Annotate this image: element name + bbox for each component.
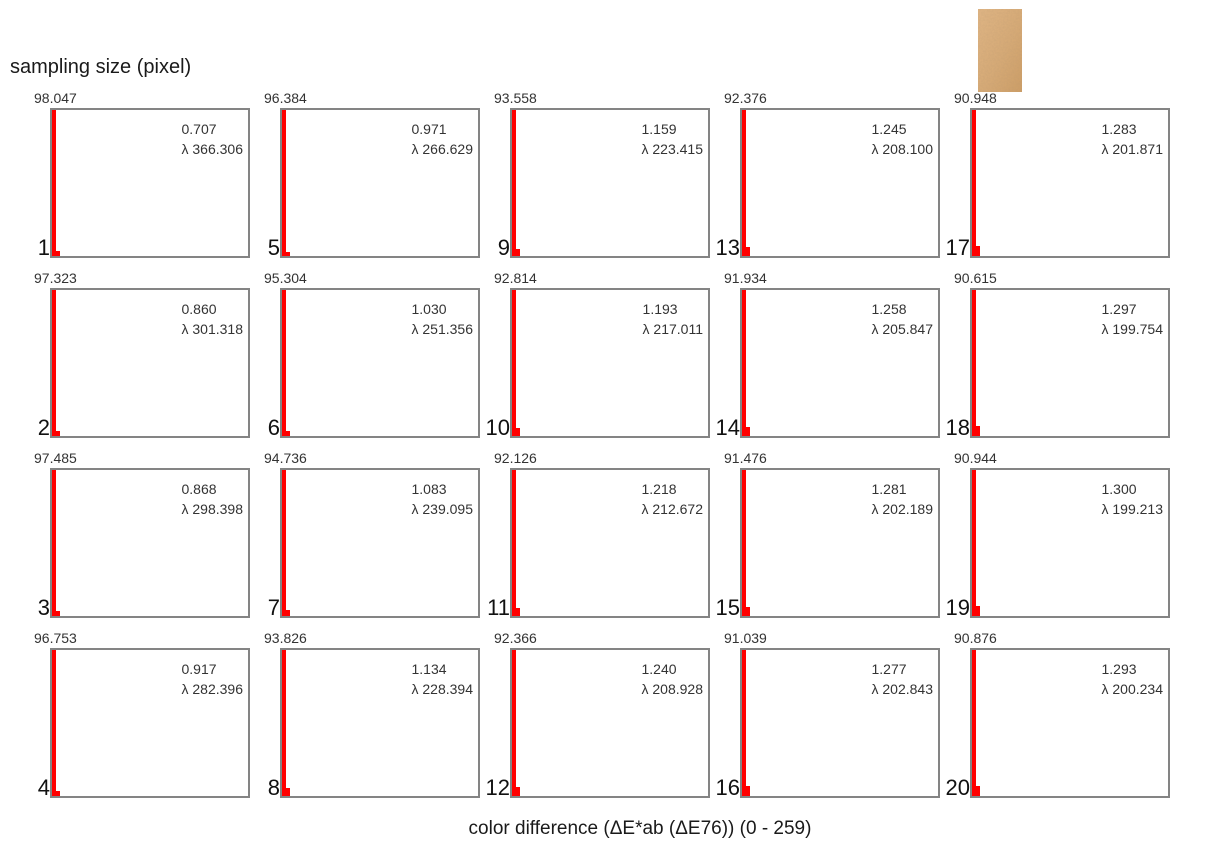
figure-title: sampling size (pixel) [10,56,191,79]
histogram-second-bin [972,786,980,796]
histogram-first-bin [52,290,56,436]
stats-annotation: 1.300 λ 199.213 [1102,479,1164,519]
stats-annotation: 1.283 λ 201.871 [1102,119,1164,159]
histogram-second-bin [742,247,750,256]
lambda-value: λ 205.847 [872,319,934,339]
sampling-size-label: 19 [946,595,970,621]
histogram-second-bin [742,427,750,436]
histogram-panel: 97.323 2 0.860 λ 301.318 [50,288,250,438]
histogram-first-bin [512,650,516,796]
mean-delta-e-value: 0.707 [182,119,244,139]
histogram-second-bin [742,786,750,796]
lambda-value: λ 239.095 [412,499,474,519]
histogram-first-bin [512,290,516,436]
mean-delta-e-value: 1.281 [872,479,934,499]
lambda-value: λ 199.754 [1102,319,1164,339]
histogram-panel: 90.876 20 1.293 λ 200.234 [970,648,1170,798]
peak-percentage-label: 96.384 [264,90,307,106]
mean-delta-e-value: 1.134 [412,659,474,679]
histogram-first-bin [742,110,746,256]
stats-annotation: 1.293 λ 200.234 [1102,659,1164,699]
histogram-panel: 90.615 18 1.297 λ 199.754 [970,288,1170,438]
histogram-panel: 92.814 10 1.193 λ 217.011 [510,288,710,438]
histogram-first-bin [742,290,746,436]
mean-delta-e-value: 1.193 [643,299,703,319]
peak-percentage-label: 97.485 [34,450,77,466]
histogram-first-bin [282,470,286,616]
lambda-value: λ 266.629 [412,139,474,159]
mean-delta-e-value: 1.245 [872,119,934,139]
histogram-panel: 93.558 9 1.159 λ 223.415 [510,108,710,258]
sampling-size-label: 10 [486,415,510,441]
histogram-panel: 92.376 13 1.245 λ 208.100 [740,108,940,258]
peak-percentage-label: 98.047 [34,90,77,106]
peak-percentage-label: 96.753 [34,630,77,646]
histogram-second-bin [972,606,980,616]
sampling-size-label: 9 [498,235,510,261]
peak-percentage-label: 92.814 [494,270,537,286]
mean-delta-e-value: 1.159 [642,119,704,139]
histogram-first-bin [52,470,56,616]
mean-delta-e-value: 1.240 [642,659,704,679]
peak-percentage-label: 90.944 [954,450,997,466]
mean-delta-e-value: 1.297 [1102,299,1164,319]
stats-annotation: 1.281 λ 202.189 [872,479,934,519]
histogram-second-bin [52,431,60,436]
lambda-value: λ 200.234 [1102,679,1164,699]
mean-delta-e-value: 0.860 [182,299,244,319]
mean-delta-e-value: 1.218 [642,479,704,499]
histogram-panel: 97.485 3 0.868 λ 298.398 [50,468,250,618]
sampling-size-label: 6 [268,415,280,441]
sampling-size-label: 2 [38,415,50,441]
sampling-size-label: 1 [38,235,50,261]
histogram-first-bin [282,290,286,436]
mean-delta-e-value: 0.917 [182,659,244,679]
histogram-second-bin [282,252,290,256]
sampling-size-label: 12 [486,775,510,801]
peak-percentage-label: 90.948 [954,90,997,106]
lambda-value: λ 301.318 [182,319,244,339]
peak-percentage-label: 91.934 [724,270,767,286]
histogram-panel: 91.476 15 1.281 λ 202.189 [740,468,940,618]
peak-percentage-label: 93.558 [494,90,537,106]
lambda-value: λ 282.396 [182,679,244,699]
peak-percentage-label: 91.476 [724,450,767,466]
histogram-first-bin [972,290,976,436]
stats-annotation: 1.218 λ 212.672 [642,479,704,519]
histogram-second-bin [282,788,290,796]
lambda-value: λ 199.213 [1102,499,1164,519]
histogram-second-bin [972,246,980,256]
skin-sample-image [978,9,1022,92]
stats-annotation: 1.083 λ 239.095 [412,479,474,519]
histogram-first-bin [512,470,516,616]
lambda-value: λ 212.672 [642,499,704,519]
peak-percentage-label: 91.039 [724,630,767,646]
histogram-panel: 95.304 6 1.030 λ 251.356 [280,288,480,438]
histogram-first-bin [972,650,976,796]
stats-annotation: 1.258 λ 205.847 [872,299,934,339]
histogram-first-bin [52,110,56,256]
mean-delta-e-value: 1.258 [872,299,934,319]
peak-percentage-label: 95.304 [264,270,307,286]
mean-delta-e-value: 1.277 [872,659,934,679]
sampling-size-label: 5 [268,235,280,261]
stats-annotation: 0.707 λ 366.306 [182,119,244,159]
lambda-value: λ 202.843 [872,679,934,699]
lambda-value: λ 208.100 [872,139,934,159]
histogram-panel: 92.366 12 1.240 λ 208.928 [510,648,710,798]
histogram-second-bin [282,431,290,436]
histogram-second-bin [512,249,520,256]
histogram-first-bin [52,650,56,796]
stats-annotation: 0.971 λ 266.629 [412,119,474,159]
x-axis-label: color difference (ΔE*ab (ΔE76)) (0 - 259… [70,818,1210,840]
histogram-panel: 91.934 14 1.258 λ 205.847 [740,288,940,438]
sampling-size-label: 4 [38,775,50,801]
skin-texture-graphic [978,9,1022,92]
stats-annotation: 1.277 λ 202.843 [872,659,934,699]
histogram-second-bin [972,426,980,436]
histogram-first-bin [972,110,976,256]
histogram-second-bin [52,611,60,616]
lambda-value: λ 223.415 [642,139,704,159]
stats-annotation: 1.245 λ 208.100 [872,119,934,159]
mean-delta-e-value: 0.868 [182,479,244,499]
peak-percentage-label: 92.376 [724,90,767,106]
lambda-value: λ 251.356 [412,319,474,339]
peak-percentage-label: 94.736 [264,450,307,466]
stats-annotation: 1.134 λ 228.394 [412,659,474,699]
peak-percentage-label: 90.876 [954,630,997,646]
lambda-value: λ 366.306 [182,139,244,159]
histogram-second-bin [52,791,60,796]
peak-percentage-label: 90.615 [954,270,997,286]
histogram-first-bin [282,650,286,796]
histogram-panel: 98.047 1 0.707 λ 366.306 [50,108,250,258]
mean-delta-e-value: 1.300 [1102,479,1164,499]
sampling-size-label: 15 [716,595,740,621]
stats-annotation: 0.860 λ 301.318 [182,299,244,339]
histogram-panel: 91.039 16 1.277 λ 202.843 [740,648,940,798]
mean-delta-e-value: 1.283 [1102,119,1164,139]
histogram-panel: 96.384 5 0.971 λ 266.629 [280,108,480,258]
sampling-size-label: 16 [716,775,740,801]
histogram-first-bin [742,470,746,616]
histogram-second-bin [512,608,520,616]
sampling-size-label: 20 [946,775,970,801]
histogram-first-bin [282,110,286,256]
sampling-size-label: 3 [38,595,50,621]
peak-percentage-label: 97.323 [34,270,77,286]
sampling-size-label: 18 [946,415,970,441]
histogram-panel: 90.944 19 1.300 λ 199.213 [970,468,1170,618]
stats-annotation: 1.193 λ 217.011 [643,299,703,339]
stats-annotation: 0.868 λ 298.398 [182,479,244,519]
figure-canvas: { "title": "sampling size (pixel)", "x_a… [0,0,1210,850]
lambda-value: λ 208.928 [642,679,704,699]
stats-annotation: 1.297 λ 199.754 [1102,299,1164,339]
stats-annotation: 0.917 λ 282.396 [182,659,244,699]
stats-annotation: 1.159 λ 223.415 [642,119,704,159]
histogram-second-bin [52,251,60,256]
stats-annotation: 1.240 λ 208.928 [642,659,704,699]
histogram-panel: 92.126 11 1.218 λ 212.672 [510,468,710,618]
sampling-size-label: 8 [268,775,280,801]
sampling-size-label: 17 [946,235,970,261]
histogram-second-bin [282,610,290,616]
sampling-size-label: 7 [268,595,280,621]
stats-annotation: 1.030 λ 251.356 [412,299,474,339]
mean-delta-e-value: 1.083 [412,479,474,499]
histogram-first-bin [972,470,976,616]
histogram-first-bin [512,110,516,256]
histogram-second-bin [742,607,750,616]
histogram-panel: 94.736 7 1.083 λ 239.095 [280,468,480,618]
histogram-second-bin [512,787,520,796]
lambda-value: λ 217.011 [643,319,703,339]
peak-percentage-label: 92.126 [494,450,537,466]
lambda-value: λ 298.398 [182,499,244,519]
mean-delta-e-value: 0.971 [412,119,474,139]
sampling-size-label: 14 [716,415,740,441]
lambda-value: λ 228.394 [412,679,474,699]
peak-percentage-label: 92.366 [494,630,537,646]
histogram-panel: 96.753 4 0.917 λ 282.396 [50,648,250,798]
sampling-size-label: 11 [487,595,510,621]
sampling-size-label: 13 [716,235,740,261]
histogram-panel: 93.826 8 1.134 λ 228.394 [280,648,480,798]
histogram-second-bin [512,428,520,436]
mean-delta-e-value: 1.030 [412,299,474,319]
lambda-value: λ 202.189 [872,499,934,519]
histogram-first-bin [742,650,746,796]
peak-percentage-label: 93.826 [264,630,307,646]
mean-delta-e-value: 1.293 [1102,659,1164,679]
histogram-panel: 90.948 17 1.283 λ 201.871 [970,108,1170,258]
lambda-value: λ 201.871 [1102,139,1164,159]
